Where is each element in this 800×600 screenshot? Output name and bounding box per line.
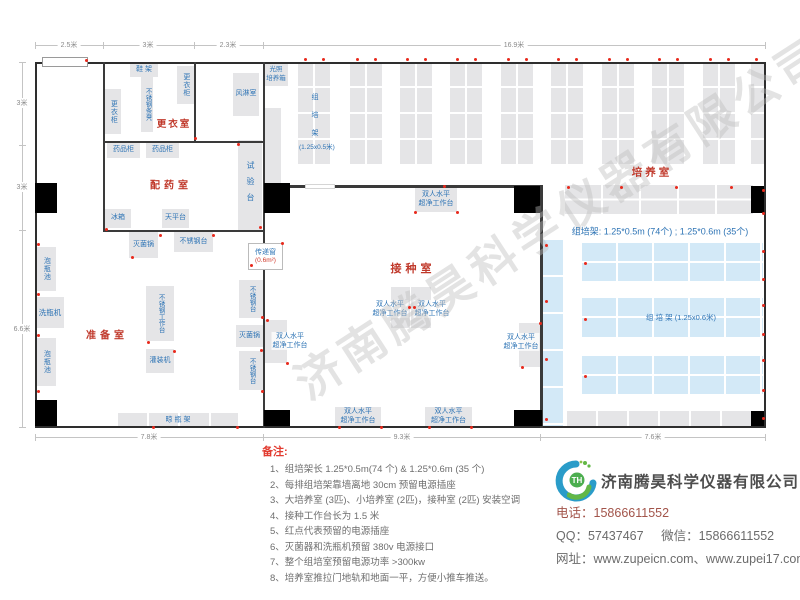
culture-rack-label: 组 培 架 (1.25x0.5米): [299, 86, 331, 151]
power-socket-dot: [584, 262, 587, 265]
dim-tick: [540, 434, 541, 441]
dim-label: 3米: [14, 182, 31, 192]
power-socket-dot: [413, 306, 416, 309]
power-socket-dot: [709, 58, 712, 61]
wall-dispensing-top: [103, 141, 264, 143]
phone-label: 电话：: [556, 506, 594, 520]
dim-tick: [35, 434, 36, 441]
dim-tick: [19, 62, 26, 63]
power-socket-dot: [755, 58, 758, 61]
power-socket-dot: [281, 242, 284, 245]
wall-changing-left: [103, 62, 105, 230]
power-socket-dot: [259, 226, 262, 229]
note-item: 8、培养室推拉门地轨和地面一平，方便小推车推送。: [270, 571, 520, 587]
dim-label: 9.3米: [391, 432, 414, 442]
power-socket-dot: [762, 359, 765, 362]
dim-line-left: [22, 62, 23, 428]
floor-plan: 济南腾昊科学仪器有限公司 2.5米 3米 2.3米 16.9米 3米 3米 6.…: [0, 0, 800, 600]
dim-label: 3米: [140, 40, 157, 50]
power-socket-dot: [762, 250, 765, 253]
power-socket-dot: [567, 186, 570, 189]
note-item: 3、大培养室 (3匹)、小培养室 (2匹)，接种室 (2匹) 安装空调: [270, 493, 520, 509]
power-socket-dot: [212, 234, 215, 237]
wall-prep-top: [103, 230, 264, 232]
transfer-window-size: (0.6m²): [255, 257, 276, 264]
room-label-culture: 培养室: [632, 165, 673, 180]
web-label: 网址：: [556, 552, 594, 566]
power-socket-dot: [584, 375, 587, 378]
power-socket-dot: [322, 58, 325, 61]
power-socket-dot: [626, 58, 629, 61]
dim-label: 2.3米: [217, 40, 240, 50]
dim-label: 6.6米: [11, 324, 34, 334]
power-socket-dot: [762, 389, 765, 392]
power-socket-dot: [37, 334, 40, 337]
power-socket-dot: [380, 426, 383, 429]
power-socket-dot: [557, 58, 560, 61]
power-socket-dot: [37, 390, 40, 393]
power-socket-dot: [414, 211, 417, 214]
dim-label: 7.8米: [138, 432, 161, 442]
logo-letters: TH: [572, 476, 583, 485]
power-socket-dot: [762, 304, 765, 307]
power-socket-dot: [762, 417, 765, 420]
dim-tick: [19, 427, 26, 428]
power-socket-dot: [159, 234, 162, 237]
power-socket-dot: [236, 426, 239, 429]
power-socket-dot: [406, 58, 409, 61]
power-socket-dot: [147, 341, 150, 344]
power-socket-dot: [261, 316, 264, 319]
power-socket-dot: [424, 58, 427, 61]
power-socket-dot: [260, 349, 263, 352]
power-socket-dot: [545, 358, 548, 361]
power-socket-dot: [266, 319, 269, 322]
notes-list: 1、组培架长 1.25*0.5m(74 个) & 1.25*0.6m (35 个…: [270, 462, 520, 586]
power-socket-dot: [237, 143, 240, 146]
power-socket-dot: [545, 300, 548, 303]
power-socket-dot: [105, 228, 108, 231]
power-socket-dot: [762, 212, 765, 215]
power-socket-dot: [545, 244, 548, 247]
dim-tick: [19, 230, 26, 231]
power-socket-dot: [545, 418, 548, 421]
room-label-dispensing: 配药室: [150, 177, 192, 192]
bottle-drying-rack-label: 晾 瓶 架: [165, 415, 192, 424]
room-label-changing: 更衣室: [157, 116, 192, 130]
note-item: 7、整个组培室预留电源功率 >300kw: [270, 555, 520, 571]
power-socket-dot: [658, 58, 661, 61]
power-socket-dot: [408, 306, 411, 309]
door-block: [35, 183, 57, 213]
power-socket-dot: [525, 58, 528, 61]
power-socket-dot: [250, 264, 253, 267]
power-socket-dot: [762, 189, 765, 192]
dim-tick: [263, 434, 264, 441]
dim-label: 2.5米: [58, 40, 81, 50]
door-block: [264, 410, 290, 426]
power-socket-dot: [762, 278, 765, 281]
dim-label: 7.6米: [642, 432, 665, 442]
culture-blue-rack-label: 组 培 架 (1.25x0.6米): [645, 313, 717, 323]
power-socket-dot: [575, 58, 578, 61]
power-socket-dot: [620, 186, 623, 189]
culture-rack-spec: 组培架: 1.25*0.5m (74个) ; 1.25*0.6m (35个): [572, 225, 749, 238]
culture-rack-label-size: (1.25x0.5米): [299, 141, 331, 151]
power-socket-dot: [456, 211, 459, 214]
power-socket-dot: [521, 366, 524, 369]
wechat-label: 微信：: [661, 529, 699, 543]
note-item: 1、组培架长 1.25*0.5m(74 个) & 1.25*0.6m (35 个…: [270, 462, 520, 478]
power-socket-dot: [428, 426, 431, 429]
contact-qq-line: QQ：57437467 微信：15866611552: [556, 525, 774, 544]
dim-tick: [35, 42, 36, 49]
power-socket-dot: [131, 256, 134, 259]
dim-label: 16.9米: [501, 40, 528, 50]
power-socket-dot: [608, 58, 611, 61]
wall-changing-divider: [194, 62, 196, 141]
dim-tick: [103, 42, 104, 49]
dim-tick: [765, 434, 766, 441]
power-socket-dot: [37, 293, 40, 296]
power-socket-dot: [194, 137, 197, 140]
power-socket-dot: [507, 58, 510, 61]
power-socket-dot: [474, 58, 477, 61]
power-socket-dot: [152, 426, 155, 429]
transfer-window: 传递窗 (0.6m²): [248, 243, 283, 270]
power-socket-dot: [356, 58, 359, 61]
power-socket-dot: [85, 59, 88, 62]
room-label-inoculation: 接种室: [391, 260, 436, 276]
qq-label: QQ：: [556, 529, 588, 543]
door-gap-marker: [305, 184, 335, 190]
notes-title: 备注:: [262, 443, 288, 459]
dim-tick: [263, 42, 264, 49]
door-block: [264, 183, 290, 213]
power-socket-dot: [762, 333, 765, 336]
dim-tick: [19, 145, 26, 146]
power-socket-dot: [37, 243, 40, 246]
phone-number: 15866611552: [594, 506, 670, 520]
note-item: 5、红点代表预留的电源插座: [270, 524, 520, 540]
dim-label: 3米: [14, 98, 31, 108]
power-socket-dot: [730, 186, 733, 189]
power-socket-dot: [338, 426, 341, 429]
note-item: 6、灭菌器和洗瓶机预留 380v 电源接口: [270, 540, 520, 556]
sliding-door-marker: [42, 57, 88, 67]
wechat-number: 15866611552: [699, 529, 775, 543]
power-socket-dot: [584, 318, 587, 321]
power-socket-dot: [470, 426, 473, 429]
door-block: [35, 400, 57, 426]
power-socket-dot: [539, 322, 542, 325]
note-item: 2、每排组培架靠墙离地 30cm 预留电源插座: [270, 478, 520, 494]
power-socket-dot: [456, 58, 459, 61]
clean-bench-label: 双人水平 超净工作台: [503, 333, 540, 351]
power-socket-dot: [676, 58, 679, 61]
power-socket-dot: [374, 58, 377, 61]
door-block: [514, 410, 542, 426]
web-urls: www.zupeicn.com、www.zupei17.com: [594, 552, 800, 566]
note-item: 4、接种工作台长为 1.5 米: [270, 509, 520, 525]
culture-rack-label-chars: 组 培 架: [312, 94, 319, 137]
contact-phone-line: 电话：15866611552: [556, 502, 669, 521]
company-logo: TH: [554, 459, 598, 503]
power-socket-dot: [286, 362, 289, 365]
power-socket-dot: [173, 350, 176, 353]
qq-number: 57437467: [588, 529, 644, 543]
room-label-prep: 准备室: [86, 327, 128, 342]
dim-tick: [194, 42, 195, 49]
power-socket-dot: [304, 58, 307, 61]
company-name: 济南腾昊科学仪器有限公司: [601, 470, 799, 492]
power-socket-dot: [261, 390, 264, 393]
power-socket-dot: [675, 186, 678, 189]
power-socket-dot: [443, 185, 446, 188]
power-socket-dot: [727, 58, 730, 61]
contact-web-line: 网址：www.zupeicn.com、www.zupei17.com: [556, 548, 800, 567]
transfer-window-label: 传递窗: [255, 249, 276, 257]
